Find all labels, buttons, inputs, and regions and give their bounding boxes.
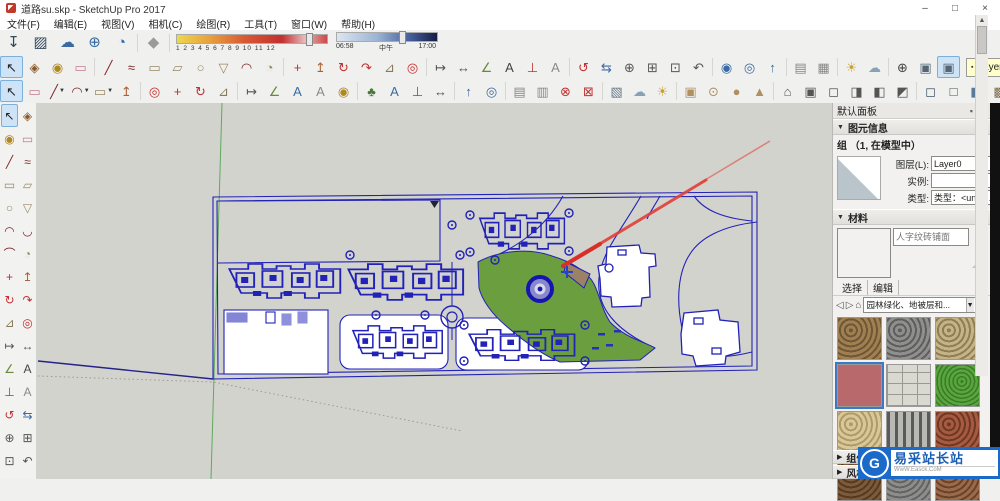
- paint-bucket-icon[interactable]: ◉: [46, 56, 69, 78]
- line-icon[interactable]: ╱▼: [46, 80, 69, 102]
- materials-header[interactable]: ▼ 材料 ×: [833, 209, 991, 225]
- pie-icon[interactable]: ◔: [19, 242, 36, 265]
- dimension-icon[interactable]: ↔: [19, 334, 36, 357]
- fountain: [528, 277, 552, 301]
- dimension-icon[interactable]: ↔: [429, 80, 452, 102]
- toolbar-separator: [773, 82, 774, 100]
- push-pull-icon[interactable]: ↥: [309, 56, 332, 78]
- arc-icon[interactable]: ◠▼: [69, 80, 92, 102]
- collapse-triangle-icon: ▼: [837, 124, 844, 131]
- 3d-text-icon[interactable]: A: [544, 56, 567, 78]
- fog-icon[interactable]: ☁: [863, 56, 886, 78]
- tray-title: 默认面板: [837, 103, 877, 118]
- north-marker: [430, 201, 439, 208]
- section-cut-icon[interactable]: ▥: [531, 80, 554, 102]
- entity-thumbnail: [837, 156, 881, 200]
- shape-cylinder-icon[interactable]: ⊙: [702, 80, 725, 102]
- tape-measure-icon[interactable]: ↦: [429, 56, 452, 78]
- toolbar-secondary: ↖▭╱▼◠▼▭▼↥◎+↻⊿↦∠AA◉♣A⊥↔↑◎▤▥⊗⊠▧☁☀▣⊙●▲⌂▣◻◨◧…: [0, 79, 1000, 104]
- line-icon[interactable]: ╱: [1, 150, 18, 173]
- toolbar-separator: [137, 34, 138, 52]
- zoom-extents-icon[interactable]: ⊡: [664, 56, 687, 78]
- rotate-icon[interactable]: ↻: [332, 56, 355, 78]
- text-icon[interactable]: A: [498, 56, 521, 78]
- shape-box-icon[interactable]: ▣: [679, 80, 702, 102]
- materials-tabs: 选择 编辑 ✐: [833, 280, 991, 296]
- push-pull-icon[interactable]: ↥: [115, 80, 138, 102]
- scale-icon[interactable]: ⊿: [378, 56, 401, 78]
- shadow-time-slider[interactable]: 06:58 中午 17:00: [336, 32, 438, 53]
- axes-icon[interactable]: ⊥: [406, 80, 429, 102]
- upload-model-icon[interactable]: ☁: [54, 31, 81, 55]
- model-viewport[interactable]: [36, 103, 832, 479]
- menu-item-6[interactable]: 工具(T): [237, 16, 284, 31]
- forward-arrow-icon[interactable]: ▷: [846, 300, 854, 311]
- toolbar-separator: [916, 82, 917, 100]
- section-plane-icon[interactable]: ▤: [508, 80, 531, 102]
- toolbar-separator: [569, 58, 570, 76]
- entity-summary: 组 （1, 在模型中）: [837, 137, 921, 152]
- entity-info-title: 图元信息: [848, 120, 888, 135]
- site-plan-drawing: [36, 103, 832, 479]
- swatch-grass[interactable]: [935, 364, 980, 407]
- view-cube-icon[interactable]: ▣: [914, 56, 937, 78]
- freehand-icon[interactable]: ≈: [19, 150, 36, 173]
- fog-icon[interactable]: ☁: [628, 80, 651, 102]
- material-category-dropdown[interactable]: 园林绿化、地被层和... ▼: [863, 297, 976, 313]
- watermark-subtext: WwW.Easck.CoM: [894, 466, 995, 474]
- style-wireframe-icon[interactable]: ◻: [919, 80, 942, 102]
- toolbar-separator: [602, 82, 603, 100]
- watermark-title: 易采站长站: [894, 452, 995, 466]
- layer-pencil-icon: ▪: [971, 64, 973, 71]
- protractor-icon[interactable]: ∠: [263, 80, 286, 102]
- view-back-icon[interactable]: ◧: [868, 80, 891, 102]
- axes-icon[interactable]: ⊥: [1, 380, 18, 403]
- toolbar-separator: [505, 82, 506, 100]
- rotated-rectangle-icon[interactable]: ▱: [166, 56, 189, 78]
- close-button[interactable]: ×: [970, 3, 1000, 14]
- entity-summary-row: 组 （1, 在模型中） ▦: [833, 135, 991, 154]
- swatch-pavers[interactable]: [886, 364, 931, 407]
- red-inference-line: [563, 141, 770, 266]
- menu-bar: 文件(F)编辑(E)视图(V)相机(C)绘图(R)工具(T)窗口(W)帮助(H): [0, 16, 1000, 31]
- toolbar-separator: [283, 58, 284, 76]
- tray-title-bar[interactable]: 默认面板 ▪ ×: [833, 103, 991, 119]
- zoom-icon[interactable]: ⊕: [1, 426, 18, 449]
- toolbar-separator: [454, 82, 455, 100]
- look-around-icon[interactable]: ◎: [480, 80, 503, 102]
- share-model-icon[interactable]: ▨: [27, 31, 54, 55]
- line-icon[interactable]: ╱: [97, 56, 120, 78]
- menu-item-3[interactable]: 视图(V): [94, 16, 141, 31]
- menu-item-1[interactable]: 文件(F): [0, 16, 47, 31]
- walk-icon[interactable]: ↑: [457, 80, 480, 102]
- shadow-time-noon: 中午: [379, 43, 393, 53]
- watermark-logo: G: [860, 449, 889, 478]
- shadow-month-slider[interactable]: 1 2 3 4 5 6 7 8 9 10 11 12: [176, 34, 328, 52]
- 3d-text-icon[interactable]: A: [309, 80, 332, 102]
- minimize-button[interactable]: –: [910, 3, 940, 14]
- previous-view-icon[interactable]: ↶: [19, 449, 36, 472]
- move-icon[interactable]: +: [166, 80, 189, 102]
- tab-edit[interactable]: 编辑: [868, 280, 899, 295]
- view-right-icon[interactable]: ◨: [845, 80, 868, 102]
- select-icon[interactable]: ↖: [0, 80, 23, 102]
- follow-me-icon[interactable]: ↷: [19, 288, 36, 311]
- dropdown-caret-icon[interactable]: ▼: [59, 88, 65, 94]
- toolbar-separator: [837, 58, 838, 76]
- view-front-icon[interactable]: ◻: [822, 80, 845, 102]
- previous-view-icon[interactable]: ↶: [687, 56, 710, 78]
- dropdown-caret-icon[interactable]: ▼: [84, 88, 90, 94]
- view-left-icon[interactable]: ◩: [891, 80, 914, 102]
- orbit-icon[interactable]: ↺: [572, 56, 595, 78]
- paint-bucket-icon[interactable]: ◉: [332, 80, 355, 102]
- instance-label: 实例:: [885, 174, 929, 188]
- style-textured-icon[interactable]: ▩: [988, 80, 1000, 102]
- eraser-icon[interactable]: ▭: [69, 56, 92, 78]
- materials-nav: ◁ ▷ ⌂ 园林绿化、地被层和... ▼ ◧: [833, 296, 991, 314]
- materials-body: 人字纹砖铺面 ▣ ◙: [833, 225, 991, 280]
- section-fill-icon[interactable]: ▦: [812, 56, 835, 78]
- expand-triangle-icon: ▶: [837, 468, 842, 476]
- move-icon[interactable]: +: [286, 56, 309, 78]
- sketchup-app-icon: [6, 3, 16, 13]
- toolbar-standard: ↧▨☁⊕◔◆ 1 2 3 4 5 6 7 8 9 10 11 12 06:58 …: [0, 30, 1000, 56]
- default-tray-panel: 默认面板 ▪ × ▼ 图元信息 × 组 （1, 在模型中） ▦ 图层(L): L…: [832, 103, 991, 479]
- view-top-icon[interactable]: ▣: [799, 80, 822, 102]
- toolbar-separator: [357, 82, 358, 100]
- warehouse-download-icon[interactable]: ↧: [0, 31, 27, 55]
- chevron-down-icon[interactable]: ▼: [966, 298, 974, 312]
- pan-icon[interactable]: ⇆: [19, 403, 36, 426]
- axes-icon[interactable]: ⊥: [521, 56, 544, 78]
- rectangle-icon[interactable]: ▭▼: [92, 80, 115, 102]
- shadows-icon[interactable]: ☀: [840, 56, 863, 78]
- window-edge-strip: [990, 103, 1000, 479]
- type-label: 类型:: [885, 191, 929, 205]
- pie-icon[interactable]: ◔: [258, 56, 281, 78]
- tab-select[interactable]: 选择: [837, 280, 868, 295]
- entity-info-body: 图层(L): Layer0 ▼ 实例: 类型: 类型：<unde... ▼: [833, 154, 991, 209]
- menu-item-7[interactable]: 窗口(W): [284, 16, 334, 31]
- text-icon[interactable]: A: [19, 357, 36, 380]
- polygon-icon[interactable]: ▽: [19, 196, 36, 219]
- tape-measure-icon[interactable]: ↦: [1, 334, 18, 357]
- circle-icon[interactable]: ○: [189, 56, 212, 78]
- offset-icon[interactable]: ◎: [401, 56, 424, 78]
- sketchup-window: { "window": { "title": "道路su.skp - Sketc…: [0, 0, 1000, 479]
- dimension-icon[interactable]: ↔: [452, 56, 475, 78]
- home-icon[interactable]: ⌂: [855, 300, 861, 311]
- shape-cone-icon[interactable]: ▲: [748, 80, 771, 102]
- scale-icon[interactable]: ⊿: [212, 80, 235, 102]
- position-camera-icon[interactable]: ◉: [715, 56, 738, 78]
- back-arrow-icon[interactable]: ◁: [836, 300, 844, 311]
- window-controls: – □ ×: [910, 0, 1000, 16]
- panel-scrollbar[interactable]: ▲: [975, 15, 988, 376]
- offset-icon[interactable]: ◎: [19, 311, 36, 334]
- polygon-icon[interactable]: ▽: [212, 56, 235, 78]
- menu-item-5[interactable]: 绘图(R): [189, 16, 237, 31]
- rotate-icon[interactable]: ↻: [189, 80, 212, 102]
- view-iso-icon[interactable]: ⌂: [776, 80, 799, 102]
- section-plane-icon[interactable]: ▤: [789, 56, 812, 78]
- two-point-arc-icon[interactable]: ◡: [19, 219, 36, 242]
- arc-icon[interactable]: ◠: [1, 219, 18, 242]
- freehand-icon[interactable]: ≈: [120, 56, 143, 78]
- toolbar-separator: [888, 58, 889, 76]
- orbit-icon[interactable]: ↺: [1, 403, 18, 426]
- swatch-red-brick[interactable]: [837, 364, 882, 407]
- look-around-icon[interactable]: ◎: [738, 56, 761, 78]
- toolbar-separator: [140, 82, 141, 100]
- left-tool-palette: ↖◈◉▭╱≈▭▱○▽◠◡⌒◔+↥↻↷⊿◎↦↔∠A⊥A↺⇆⊕⊞⊡↶: [0, 103, 37, 479]
- layer-label: 图层(L):: [885, 157, 929, 171]
- view-cube-shaded-icon[interactable]: ▣: [937, 56, 960, 78]
- zoom-window-icon[interactable]: ⊞: [19, 426, 36, 449]
- protractor-icon[interactable]: ∠: [475, 56, 498, 78]
- circle-icon[interactable]: ○: [1, 196, 18, 219]
- eraser-icon[interactable]: ▭: [19, 127, 36, 150]
- shape-sphere-icon[interactable]: ●: [725, 80, 748, 102]
- dropdown-caret-icon[interactable]: ▼: [107, 88, 113, 94]
- tape-measure-icon[interactable]: ↦: [240, 80, 263, 102]
- rotated-rectangle-icon[interactable]: ▱: [19, 173, 36, 196]
- paint-bucket-icon[interactable]: ◉: [1, 127, 18, 150]
- zoom-icon[interactable]: ⊕: [618, 56, 641, 78]
- hide-rest-icon[interactable]: ⊠: [577, 80, 600, 102]
- collapse-triangle-icon: ▼: [837, 214, 844, 221]
- expand-triangle-icon: ▶: [837, 453, 842, 461]
- zoom-window-icon[interactable]: ⊞: [641, 56, 664, 78]
- three-point-arc-icon[interactable]: ⌒: [1, 242, 18, 265]
- rectangle-icon[interactable]: ▭: [1, 173, 18, 196]
- arc-icon[interactable]: ◠: [235, 56, 258, 78]
- toolbar-separator: [169, 34, 170, 52]
- make-component-icon[interactable]: ◈: [19, 104, 36, 127]
- watermark: G 易采站长站 WwW.Easck.CoM: [858, 447, 1000, 479]
- materials-title: 材料: [848, 210, 868, 225]
- make-component-icon[interactable]: ◈: [23, 56, 46, 78]
- compass-icon[interactable]: ⊕: [891, 56, 914, 78]
- swatch-brown-gravel[interactable]: [837, 317, 882, 360]
- menu-item-4[interactable]: 相机(C): [141, 16, 189, 31]
- 3d-text-icon[interactable]: A: [19, 380, 36, 403]
- blue-edge-line: [38, 361, 213, 379]
- eraser-icon[interactable]: ▭: [23, 80, 46, 102]
- material-name-field[interactable]: 人字纹砖铺面: [893, 228, 969, 246]
- shadow-time-end: 17:00: [418, 43, 436, 53]
- select-icon[interactable]: ↖: [0, 56, 23, 78]
- dotted-guide-line: [38, 376, 462, 431]
- shadow-month-labels: 1 2 3 4 5 6 7 8 9 10 11 12: [176, 45, 328, 52]
- toolbar-separator: [237, 82, 238, 100]
- swatch-gray-gravel[interactable]: [886, 317, 931, 360]
- zoom-extents-icon[interactable]: ⊡: [1, 449, 18, 472]
- label-icon[interactable]: A: [383, 80, 406, 102]
- pan-icon[interactable]: ⇆: [595, 56, 618, 78]
- scale-icon[interactable]: ⊿: [1, 311, 18, 334]
- toolbar-separator: [712, 58, 713, 76]
- text-icon[interactable]: A: [286, 80, 309, 102]
- offset-icon[interactable]: ◎: [143, 80, 166, 102]
- walk-icon[interactable]: ↑: [761, 56, 784, 78]
- swatch-tan-rock[interactable]: [935, 317, 980, 360]
- maximize-button[interactable]: □: [940, 3, 970, 14]
- toolbar-separator: [786, 58, 787, 76]
- move-icon[interactable]: +: [1, 265, 18, 288]
- shadow-time-start: 06:58: [336, 43, 354, 53]
- vegetation-icon[interactable]: ♣: [360, 80, 383, 102]
- shadows-icon[interactable]: ☀: [651, 80, 674, 102]
- rotate-icon[interactable]: ↻: [1, 288, 18, 311]
- window-title: 道路su.skp - SketchUp Pro 2017: [21, 1, 166, 16]
- pin-icon[interactable]: ▪: [970, 106, 973, 116]
- rectangle-icon[interactable]: ▭: [143, 56, 166, 78]
- scenes-icon[interactable]: ▧: [605, 80, 628, 102]
- menu-item-8[interactable]: 帮助(H): [334, 16, 382, 31]
- add-extension-icon[interactable]: ⊕: [81, 31, 108, 55]
- toolbar-separator: [94, 58, 95, 76]
- trimble-connect-icon[interactable]: ◔: [108, 31, 135, 55]
- title-bar: 道路su.skp - SketchUp Pro 2017 – □ ×: [0, 0, 1000, 17]
- follow-me-icon[interactable]: ↷: [355, 56, 378, 78]
- push-pull-icon[interactable]: ↥: [19, 265, 36, 288]
- entity-info-header[interactable]: ▼ 图元信息 ×: [833, 119, 991, 135]
- protractor-icon[interactable]: ∠: [1, 357, 18, 380]
- delete-guides-icon[interactable]: ⊗: [554, 80, 577, 102]
- toolbar-separator: [426, 58, 427, 76]
- toolbar-separator: [676, 82, 677, 100]
- material-preview: [837, 228, 891, 278]
- select-icon[interactable]: ↖: [1, 104, 18, 127]
- toolbar-large-tool-set: ↖◈◉▭╱≈▭▱○▽◠◔+↥↻↷⊿◎↦↔∠A⊥A↺⇆⊕⊞⊡↶◉◎↑▤▦☀☁⊕▣▣…: [0, 55, 1000, 79]
- scroll-up-icon[interactable]: ▲: [979, 15, 986, 24]
- style-hidden-line-icon[interactable]: □: [942, 80, 965, 102]
- menu-item-2[interactable]: 编辑(E): [47, 16, 94, 31]
- scrollbar-thumb[interactable]: [977, 26, 987, 54]
- soften-edges-icon[interactable]: ◆: [140, 31, 167, 55]
